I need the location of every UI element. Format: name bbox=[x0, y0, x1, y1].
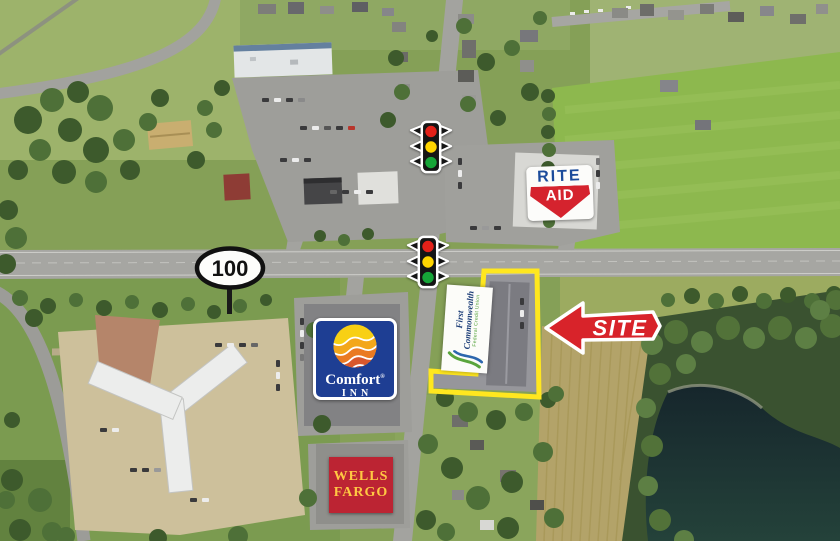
comfort-inn-line2: INN bbox=[320, 388, 394, 399]
wells-fargo-sign: WELLS FARGO bbox=[329, 457, 393, 513]
traffic-light-icon bbox=[402, 234, 454, 290]
first-commonwealth-wave-icon bbox=[445, 350, 484, 371]
wells-fargo-line1: WELLS bbox=[329, 469, 393, 485]
site-arrow: SITE bbox=[542, 297, 664, 359]
rite-aid-line1: RITE bbox=[529, 167, 590, 187]
first-commonwealth-sign: First Commonwealth Federal Credit Union bbox=[441, 285, 493, 374]
comfort-inn-line1: Comfort bbox=[325, 372, 380, 388]
registered-mark: ® bbox=[380, 374, 384, 380]
site-arrow-label: SITE bbox=[593, 316, 648, 341]
wells-fargo-line2: FARGO bbox=[329, 485, 393, 501]
comfort-inn-name: Comfort® bbox=[316, 370, 394, 388]
route-number: 100 bbox=[212, 256, 249, 281]
shield-post bbox=[227, 286, 232, 314]
route-100-shield: 100 bbox=[194, 246, 266, 316]
traffic-light-icon bbox=[405, 119, 457, 175]
comfort-inn-sign: Comfort® INN bbox=[313, 318, 397, 400]
rite-aid-sign: RITE AID bbox=[526, 165, 594, 221]
first-commonwealth-text: First Commonwealth Federal Credit Union bbox=[453, 288, 482, 352]
map-container: 100 RITE AID Comfort® INN bbox=[0, 0, 840, 541]
comfort-inn-sun-icon bbox=[326, 323, 384, 369]
rite-aid-line2: AID bbox=[530, 185, 591, 219]
